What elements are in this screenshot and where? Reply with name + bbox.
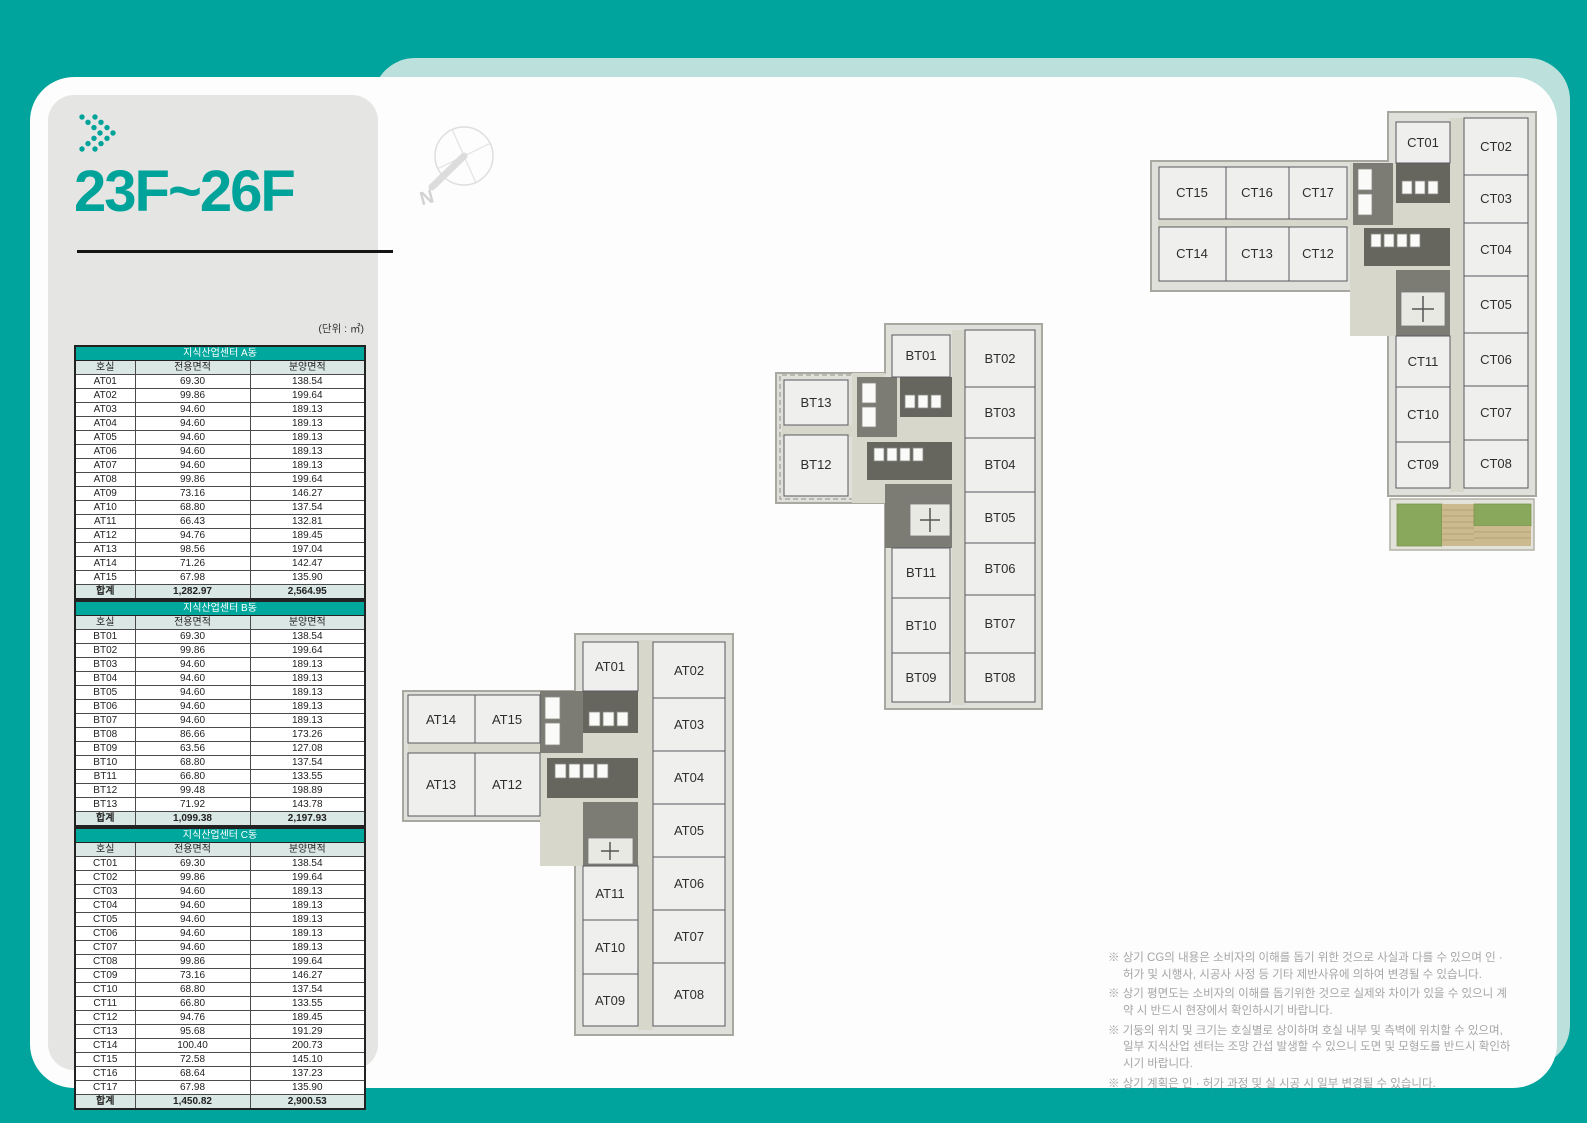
table-row-cell: AT02 [75, 389, 135, 403]
table-row-cell: 100.40 [135, 1039, 250, 1053]
table-row-cell: 138.54 [250, 857, 365, 871]
room-CT08: CT08 [1464, 440, 1528, 488]
table-row-cell: AT15 [75, 571, 135, 585]
table-row-cell: 189.45 [250, 529, 365, 543]
table-row: AT1398.56197.04 [75, 543, 365, 557]
table-row: CT1166.80133.55 [75, 997, 365, 1011]
table-row-cell: 98.56 [135, 543, 250, 557]
room-BT04: BT04 [965, 438, 1035, 492]
table-row: AT1294.76189.45 [75, 529, 365, 543]
garden-terrace [1390, 499, 1534, 550]
svg-text:BT07: BT07 [984, 616, 1015, 631]
table-title-row: 지식산업센터 C동 [75, 828, 365, 843]
table-row-cell: 189.13 [250, 658, 365, 672]
table-header-row: 호실전용면적분양면적 [75, 616, 365, 630]
table-row: BT0494.60189.13 [75, 672, 365, 686]
table-row: CT1395.68191.29 [75, 1025, 365, 1039]
table-row-cell: 199.64 [250, 389, 365, 403]
table-row-cell: 94.76 [135, 529, 250, 543]
table-row: CT0394.60189.13 [75, 885, 365, 899]
table-row: CT1572.58145.10 [75, 1053, 365, 1067]
table-row-cell: CT07 [75, 941, 135, 955]
svg-text:BT05: BT05 [984, 510, 1015, 525]
table-row: BT1068.80137.54 [75, 756, 365, 770]
table-total-row: 합계1,450.822,900.53 [75, 1095, 365, 1110]
footnote-item: ※ 기둥의 위치 및 크기는 호실별로 상이하며 호실 내부 및 측벽에 위치할… [1108, 1023, 1512, 1073]
table-row-cell: BT06 [75, 700, 135, 714]
table-row-cell: AT10 [75, 501, 135, 515]
table-row-cell: 69.30 [135, 857, 250, 871]
table-row-cell: CT03 [75, 885, 135, 899]
table-row: AT0973.16146.27 [75, 487, 365, 501]
table-row-cell: 189.13 [250, 445, 365, 459]
double-chevron-icon [75, 112, 121, 156]
room-CT16: CT16 [1226, 167, 1289, 219]
table-row: BT0794.60189.13 [75, 714, 365, 728]
table-row: AT0694.60189.13 [75, 445, 365, 459]
table-row: BT0963.56127.08 [75, 742, 365, 756]
table-row-cell: 66.80 [135, 770, 250, 784]
table-row-cell: 94.60 [135, 672, 250, 686]
table-row-cell: AT05 [75, 431, 135, 445]
table-title-row: 지식산업센터 A동 [75, 346, 365, 361]
table-row-cell: 127.08 [250, 742, 365, 756]
table-row-cell: 189.13 [250, 885, 365, 899]
svg-text:BT08: BT08 [984, 670, 1015, 685]
table-header-row-cell: 전용면적 [135, 616, 250, 630]
table-row-cell: 138.54 [250, 375, 365, 389]
svg-text:AT12: AT12 [492, 777, 522, 792]
table-header-row-cell: 분양면적 [250, 616, 365, 630]
core-building-b [857, 377, 952, 548]
svg-text:AT14: AT14 [426, 712, 456, 727]
room-BT02: BT02 [965, 330, 1035, 387]
table-row-cell: 199.64 [250, 955, 365, 969]
table-header-row-cell: 호실 [75, 843, 135, 857]
compass-north-icon: N [412, 110, 512, 210]
table-row-cell: AT07 [75, 459, 135, 473]
svg-text:AT15: AT15 [492, 712, 522, 727]
room-BT08: BT08 [965, 653, 1035, 702]
table-row: BT0394.60189.13 [75, 658, 365, 672]
room-BT12: BT12 [784, 435, 848, 496]
svg-text:AT09: AT09 [595, 993, 625, 1008]
table-row: BT0886.66173.26 [75, 728, 365, 742]
table-row-cell: 197.04 [250, 543, 365, 557]
title-divider [77, 250, 393, 253]
table-row-cell: 145.10 [250, 1053, 365, 1067]
table-row: CT14100.40200.73 [75, 1039, 365, 1053]
table-row-cell: AT13 [75, 543, 135, 557]
table-row: AT0899.86199.64 [75, 473, 365, 487]
table-row-cell: 94.60 [135, 431, 250, 445]
table-row-cell: CT13 [75, 1025, 135, 1039]
svg-text:CT14: CT14 [1176, 246, 1208, 261]
table-row: AT0394.60189.13 [75, 403, 365, 417]
svg-text:CT03: CT03 [1480, 191, 1512, 206]
room-AT15: AT15 [475, 695, 540, 743]
table-total-row: 합계1,282.972,564.95 [75, 585, 365, 600]
table-row-cell: 142.47 [250, 557, 365, 571]
table-row-cell: BT05 [75, 686, 135, 700]
svg-text:BT13: BT13 [800, 395, 831, 410]
table-row-cell: 199.64 [250, 644, 365, 658]
svg-text:AT11: AT11 [595, 886, 624, 901]
table-row-cell: CT04 [75, 899, 135, 913]
table-row-cell: 66.43 [135, 515, 250, 529]
table-row-cell: 146.27 [250, 969, 365, 983]
table-row-cell: CT10 [75, 983, 135, 997]
table-row-cell: CT15 [75, 1053, 135, 1067]
table-row-cell: BT11 [75, 770, 135, 784]
table-row-cell: 189.13 [250, 700, 365, 714]
room-AT09: AT09 [583, 974, 638, 1026]
table-row-cell: 86.66 [135, 728, 250, 742]
room-BT10: BT10 [892, 598, 950, 653]
room-CT06: CT06 [1464, 333, 1528, 386]
room-BT01: BT01 [892, 335, 950, 377]
table-row-cell: 200.73 [250, 1039, 365, 1053]
table-header-row: 호실전용면적분양면적 [75, 361, 365, 375]
table-total-row-cell: 1,450.82 [135, 1095, 250, 1110]
table-row-cell: 189.13 [250, 672, 365, 686]
table-row-cell: CT14 [75, 1039, 135, 1053]
room-CT01: CT01 [1396, 122, 1450, 163]
table-row-cell: BT03 [75, 658, 135, 672]
table-row-cell: 99.86 [135, 473, 250, 487]
floor-range-title: 23F~26F [74, 163, 294, 221]
room-CT14: CT14 [1159, 227, 1226, 281]
room-BT05: BT05 [965, 492, 1035, 543]
svg-text:CT01: CT01 [1407, 135, 1439, 150]
svg-text:AT04: AT04 [674, 770, 704, 785]
room-CT02: CT02 [1464, 118, 1528, 175]
table-total-row-cell: 2,197.93 [250, 812, 365, 827]
svg-text:BT09: BT09 [905, 670, 936, 685]
table-title: 지식산업센터 A동 [75, 346, 365, 361]
table-row-cell: AT08 [75, 473, 135, 487]
table-row-cell: 189.13 [250, 686, 365, 700]
room-AT07: AT07 [653, 910, 725, 963]
svg-text:CT02: CT02 [1480, 139, 1512, 154]
table-total-row-cell: 합계 [75, 812, 135, 827]
table-row-cell: 137.23 [250, 1067, 365, 1081]
table-row-cell: 135.90 [250, 571, 365, 585]
svg-text:AT06: AT06 [674, 876, 704, 891]
table-row: AT0594.60189.13 [75, 431, 365, 445]
table-row-cell: 189.13 [250, 899, 365, 913]
room-BT11: BT11 [892, 548, 950, 598]
svg-text:AT10: AT10 [595, 940, 625, 955]
table-row-cell: BT09 [75, 742, 135, 756]
area-tables: 지식산업센터 A동호실전용면적분양면적AT0169.30138.54AT0299… [74, 345, 364, 1110]
table-total-row-cell: 1,282.97 [135, 585, 250, 600]
table-row-cell: 199.64 [250, 473, 365, 487]
table-row-cell: AT01 [75, 375, 135, 389]
table-row: CT1767.98135.90 [75, 1081, 365, 1095]
floor-plan-building-c: CT01 CT02 CT03 CT04 CT05 CT06 CT07 CT08 … [1128, 106, 1540, 556]
table-total-row-cell: 2,900.53 [250, 1095, 365, 1110]
table-header-row-cell: 분양면적 [250, 361, 365, 375]
table-row-cell: AT04 [75, 417, 135, 431]
table-row-cell: 199.64 [250, 871, 365, 885]
table-row: BT0299.86199.64 [75, 644, 365, 658]
table-header-row: 호실전용면적분양면적 [75, 843, 365, 857]
room-AT02: AT02 [653, 642, 725, 698]
table-title: 지식산업센터 B동 [75, 601, 365, 616]
svg-text:CT15: CT15 [1176, 185, 1208, 200]
table-row: AT0494.60189.13 [75, 417, 365, 431]
table-row-cell: 68.64 [135, 1067, 250, 1081]
table-row-cell: 73.16 [135, 487, 250, 501]
room-AT06: AT06 [653, 857, 725, 910]
svg-text:CT11: CT11 [1408, 354, 1439, 369]
table-row: AT1068.80137.54 [75, 501, 365, 515]
table-row: BT1299.48198.89 [75, 784, 365, 798]
table-header-row-cell: 전용면적 [135, 361, 250, 375]
table-row: BT0594.60189.13 [75, 686, 365, 700]
table-total-row-cell: 합계 [75, 1095, 135, 1110]
table-row: CT0299.86199.64 [75, 871, 365, 885]
table-row-cell: BT02 [75, 644, 135, 658]
table-row-cell: 67.98 [135, 1081, 250, 1095]
table-row-cell: CT06 [75, 927, 135, 941]
table-row-cell: CT02 [75, 871, 135, 885]
table-row-cell: CT17 [75, 1081, 135, 1095]
table-row-cell: 94.60 [135, 899, 250, 913]
room-BT13: BT13 [784, 380, 848, 425]
floor-plan-building-b: BT01 BT02 BT03 BT04 BT05 BT06 BT07 BT08 … [762, 316, 1047, 714]
table-row-cell: 94.60 [135, 686, 250, 700]
table-row-cell: 189.13 [250, 714, 365, 728]
room-CT13: CT13 [1226, 227, 1289, 281]
room-AT13: AT13 [408, 753, 475, 816]
table-row-cell: BT13 [75, 798, 135, 812]
table-title-row: 지식산업센터 B동 [75, 601, 365, 616]
table-row-cell: 143.78 [250, 798, 365, 812]
table-row-cell: 189.13 [250, 927, 365, 941]
table-row-cell: 73.16 [135, 969, 250, 983]
area-table-building-c: 지식산업센터 C동호실전용면적분양면적CT0169.30138.54CT0299… [74, 827, 366, 1110]
table-total-row-cell: 합계 [75, 585, 135, 600]
table-row-cell: 99.86 [135, 871, 250, 885]
table-row: AT0169.30138.54 [75, 375, 365, 389]
brochure-page: 23F~26F (단위 : ㎡) 지식산업센터 A동호실전용면적분양면적AT01… [0, 0, 1587, 1123]
table-row-cell: 94.60 [135, 417, 250, 431]
table-row: AT0794.60189.13 [75, 459, 365, 473]
table-row-cell: CT05 [75, 913, 135, 927]
svg-text:AT05: AT05 [674, 823, 704, 838]
table-row-cell: 189.13 [250, 403, 365, 417]
svg-text:BT10: BT10 [905, 618, 936, 633]
svg-text:CT04: CT04 [1480, 242, 1512, 257]
footnote-item: ※ 상기 계획은 인 · 허가 과정 및 실 시공 시 일부 변경될 수 있습니… [1108, 1076, 1512, 1093]
table-row-cell: 191.29 [250, 1025, 365, 1039]
table-row-cell: 133.55 [250, 997, 365, 1011]
table-row-cell: 189.13 [250, 913, 365, 927]
unit-label: (단위 : ㎡) [74, 321, 364, 336]
table-row-cell: 137.54 [250, 501, 365, 515]
table-row-cell: 69.30 [135, 630, 250, 644]
table-row-cell: AT09 [75, 487, 135, 501]
table-row-cell: 189.13 [250, 417, 365, 431]
table-row-cell: CT11 [75, 997, 135, 1011]
table-row-cell: 137.54 [250, 756, 365, 770]
table-row-cell: 66.80 [135, 997, 250, 1011]
svg-text:AT08: AT08 [674, 987, 704, 1002]
svg-text:CT10: CT10 [1407, 407, 1439, 422]
svg-text:BT04: BT04 [984, 457, 1015, 472]
table-row-cell: 189.45 [250, 1011, 365, 1025]
floor-plan-building-a: AT01 AT02 AT03 AT04 AT05 AT06 AT07 AT08 … [395, 626, 740, 1040]
room-CT09: CT09 [1396, 442, 1450, 488]
disclaimer-footnotes: ※ 상기 CG의 내용은 소비자의 이해를 돕기 위한 것으로 사실과 다를 수… [1108, 950, 1512, 1095]
room-AT01: AT01 [583, 642, 638, 691]
table-row-cell: CT12 [75, 1011, 135, 1025]
table-row-cell: 135.90 [250, 1081, 365, 1095]
table-row-cell: BT08 [75, 728, 135, 742]
table-row-cell: 68.80 [135, 983, 250, 997]
table-row: AT1567.98135.90 [75, 571, 365, 585]
table-row-cell: 189.13 [250, 941, 365, 955]
table-row-cell: 71.26 [135, 557, 250, 571]
table-row: AT1471.26142.47 [75, 557, 365, 571]
room-CT12: CT12 [1289, 227, 1347, 281]
table-row-cell: 67.98 [135, 571, 250, 585]
table-row-cell: 63.56 [135, 742, 250, 756]
table-row-cell: 94.60 [135, 941, 250, 955]
room-CT07: CT07 [1464, 386, 1528, 440]
svg-text:CT09: CT09 [1407, 457, 1439, 472]
table-total-row-cell: 1,099.38 [135, 812, 250, 827]
table-row-cell: 198.89 [250, 784, 365, 798]
room-CT11: CT11 [1396, 336, 1450, 387]
table-row-cell: 69.30 [135, 375, 250, 389]
table-row-cell: 189.13 [250, 459, 365, 473]
room-CT15: CT15 [1159, 167, 1226, 219]
table-row-cell: AT11 [75, 515, 135, 529]
table-row-cell: 133.55 [250, 770, 365, 784]
table-row-cell: CT08 [75, 955, 135, 969]
table-row-cell: 72.58 [135, 1053, 250, 1067]
table-row-cell: BT04 [75, 672, 135, 686]
table-row-cell: CT16 [75, 1067, 135, 1081]
table-row-cell: 68.80 [135, 501, 250, 515]
table-row: CT0694.60189.13 [75, 927, 365, 941]
table-row-cell: 94.60 [135, 658, 250, 672]
table-row-cell: BT01 [75, 630, 135, 644]
svg-text:AT07: AT07 [674, 929, 704, 944]
svg-text:BT11: BT11 [906, 565, 936, 580]
svg-text:AT02: AT02 [674, 663, 704, 678]
table-row-cell: 94.60 [135, 885, 250, 899]
table-row-cell: 94.60 [135, 927, 250, 941]
table-row-cell: 71.92 [135, 798, 250, 812]
table-row-cell: 138.54 [250, 630, 365, 644]
room-BT07: BT07 [965, 595, 1035, 653]
svg-text:BT06: BT06 [984, 561, 1015, 576]
svg-text:BT12: BT12 [800, 457, 831, 472]
room-AT03: AT03 [653, 698, 725, 751]
table-row: CT1668.64137.23 [75, 1067, 365, 1081]
table-row-cell: 94.76 [135, 1011, 250, 1025]
table-row-cell: 94.60 [135, 459, 250, 473]
room-CT04: CT04 [1464, 223, 1528, 276]
table-row: BT0694.60189.13 [75, 700, 365, 714]
table-row: AT1166.43132.81 [75, 515, 365, 529]
room-BT06: BT06 [965, 543, 1035, 595]
table-row-cell: 99.86 [135, 955, 250, 969]
table-title: 지식산업센터 C동 [75, 828, 365, 843]
table-header-row-cell: 호실 [75, 361, 135, 375]
table-row-cell: AT03 [75, 403, 135, 417]
room-AT10: AT10 [583, 920, 638, 974]
table-row-cell: BT07 [75, 714, 135, 728]
table-row-cell: 146.27 [250, 487, 365, 501]
table-header-row-cell: 분양면적 [250, 843, 365, 857]
room-AT04: AT04 [653, 751, 725, 804]
table-row-cell: 94.60 [135, 445, 250, 459]
room-AT11: AT11 [583, 866, 638, 920]
table-row: BT1166.80133.55 [75, 770, 365, 784]
table-row-cell: 94.60 [135, 700, 250, 714]
table-row-cell: 94.60 [135, 913, 250, 927]
table-row-cell: 99.86 [135, 644, 250, 658]
table-row-cell: 99.86 [135, 389, 250, 403]
room-AT08: AT08 [653, 963, 725, 1026]
table-header-row-cell: 전용면적 [135, 843, 250, 857]
svg-text:CT07: CT07 [1480, 405, 1512, 420]
svg-text:AT13: AT13 [426, 777, 456, 792]
table-row: CT1068.80137.54 [75, 983, 365, 997]
table-row-cell: 189.13 [250, 431, 365, 445]
table-row-cell: AT06 [75, 445, 135, 459]
table-row-cell: CT09 [75, 969, 135, 983]
table-row-cell: 94.60 [135, 714, 250, 728]
table-row: CT1294.76189.45 [75, 1011, 365, 1025]
table-row: CT0494.60189.13 [75, 899, 365, 913]
table-row-cell: 95.68 [135, 1025, 250, 1039]
table-row: CT0594.60189.13 [75, 913, 365, 927]
table-row-cell: AT12 [75, 529, 135, 543]
table-row: CT0169.30138.54 [75, 857, 365, 871]
table-row: BT0169.30138.54 [75, 630, 365, 644]
sidebar-panel: 23F~26F (단위 : ㎡) 지식산업센터 A동호실전용면적분양면적AT01… [48, 95, 378, 1070]
table-row-cell: BT12 [75, 784, 135, 798]
table-row-cell: 132.81 [250, 515, 365, 529]
table-row-cell: 94.60 [135, 403, 250, 417]
svg-text:CT17: CT17 [1302, 185, 1334, 200]
table-row: CT0899.86199.64 [75, 955, 365, 969]
table-row-cell: 173.26 [250, 728, 365, 742]
svg-text:CT16: CT16 [1241, 185, 1273, 200]
table-row-cell: CT01 [75, 857, 135, 871]
table-total-row-cell: 2,564.95 [250, 585, 365, 600]
room-AT12: AT12 [475, 753, 540, 816]
table-header-row-cell: 호실 [75, 616, 135, 630]
table-row: AT0299.86199.64 [75, 389, 365, 403]
svg-text:AT03: AT03 [674, 717, 704, 732]
table-row: CT0973.16146.27 [75, 969, 365, 983]
table-total-row: 합계1,099.382,197.93 [75, 812, 365, 827]
table-row-cell: BT10 [75, 756, 135, 770]
room-CT05: CT05 [1464, 276, 1528, 333]
room-AT05: AT05 [653, 804, 725, 857]
table-row-cell: 99.48 [135, 784, 250, 798]
table-row-cell: 137.54 [250, 983, 365, 997]
room-BT03: BT03 [965, 387, 1035, 438]
table-row: CT0794.60189.13 [75, 941, 365, 955]
